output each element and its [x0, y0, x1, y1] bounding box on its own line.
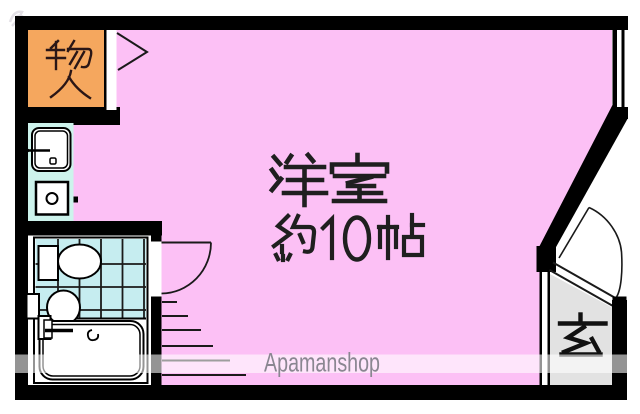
svg-text:Apamanshop: Apamanshop	[264, 348, 380, 378]
